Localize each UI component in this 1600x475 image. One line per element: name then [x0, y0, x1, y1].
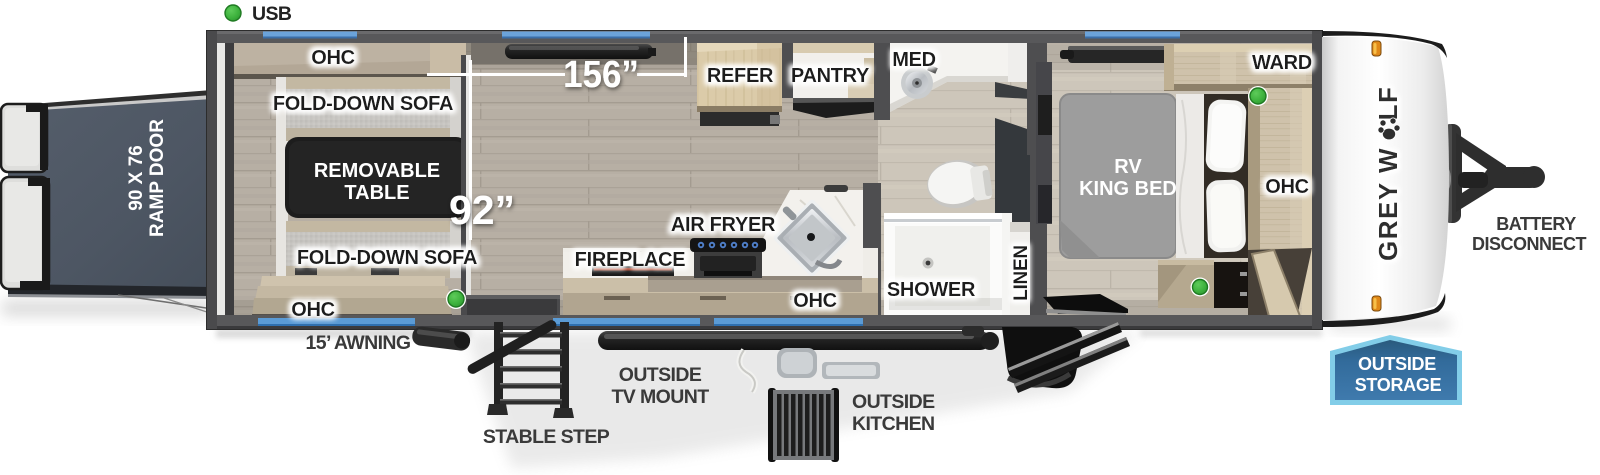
svg-text:LF: LF	[1373, 86, 1403, 121]
svg-text:GREY W: GREY W	[1373, 147, 1403, 261]
